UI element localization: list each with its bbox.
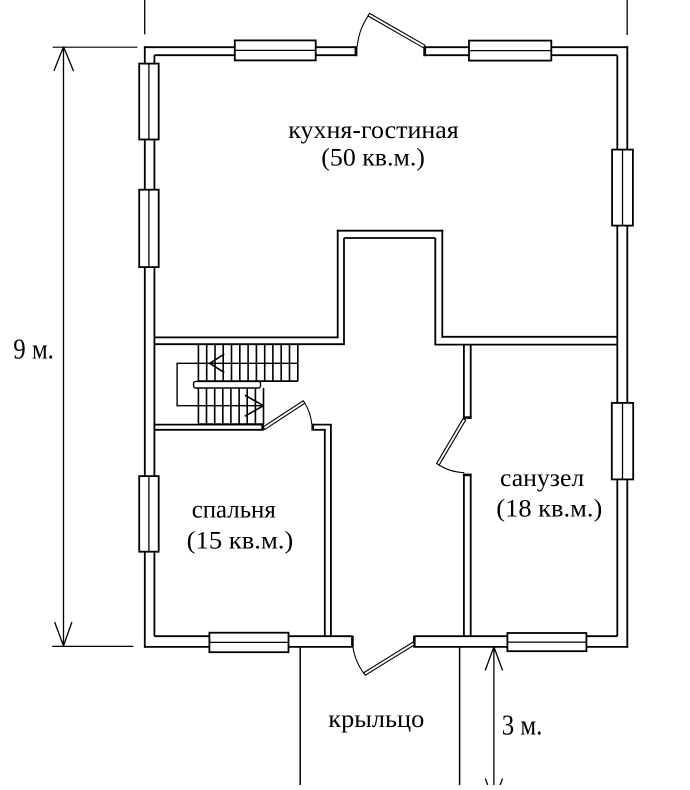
svg-text:санузел: санузел <box>500 465 584 492</box>
svg-text:крыльцо: крыльцо <box>328 706 424 733</box>
svg-text:9 м.: 9 м. <box>13 334 54 365</box>
svg-text:кухня-гостиная: кухня-гостиная <box>288 117 459 144</box>
svg-text:(18 кв.м.): (18 кв.м.) <box>496 496 602 523</box>
svg-text:(50 кв.м.): (50 кв.м.) <box>321 144 425 171</box>
svg-text:(15 кв.м.): (15 кв.м.) <box>187 527 294 554</box>
svg-text:3 м.: 3 м. <box>502 710 543 741</box>
svg-text:спальня: спальня <box>192 497 277 524</box>
